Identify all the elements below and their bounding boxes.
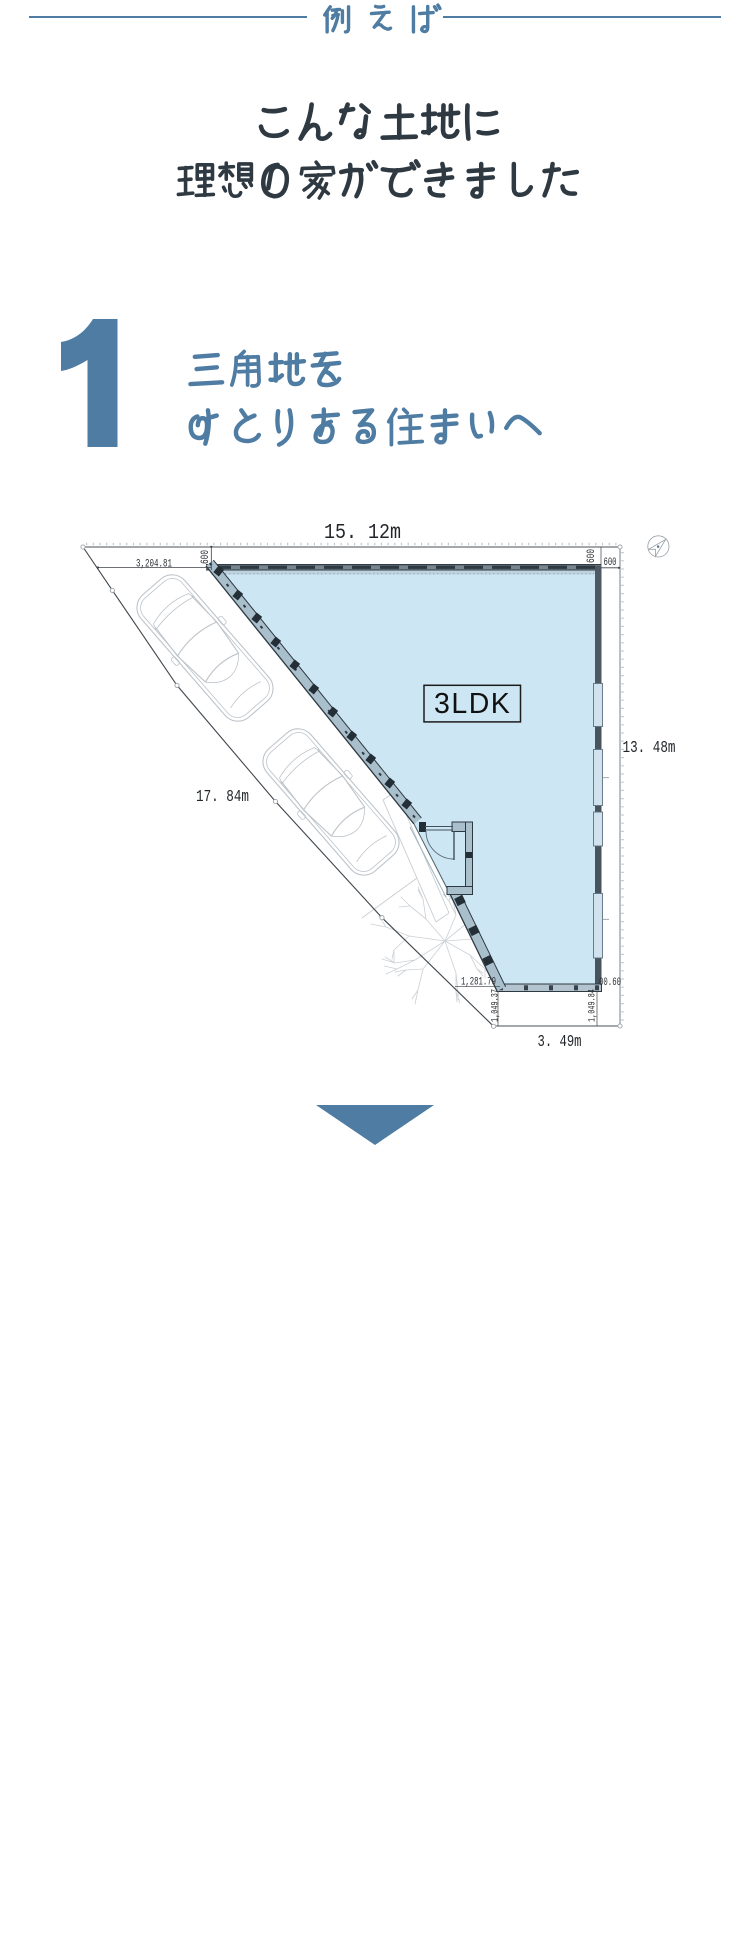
svg-text:3LDK: 3LDK bbox=[434, 688, 511, 720]
svg-text:00.60: 00.60 bbox=[599, 977, 621, 989]
svg-text:15. 12m: 15. 12m bbox=[324, 522, 401, 545]
svg-text:600: 600 bbox=[200, 550, 212, 564]
svg-text:13. 48m: 13. 48m bbox=[623, 739, 676, 758]
svg-text:17. 84m: 17. 84m bbox=[196, 788, 249, 807]
svg-text:1,049.84: 1,049.84 bbox=[587, 989, 599, 1022]
svg-text:600: 600 bbox=[604, 557, 617, 569]
svg-text:1,049.37: 1,049.37 bbox=[490, 989, 502, 1022]
svg-text:1,281.79: 1,281.79 bbox=[461, 977, 496, 989]
svg-text:3. 49m: 3. 49m bbox=[538, 1033, 582, 1052]
svg-text:3,204.81: 3,204.81 bbox=[136, 559, 172, 571]
svg-text:600: 600 bbox=[586, 549, 598, 563]
